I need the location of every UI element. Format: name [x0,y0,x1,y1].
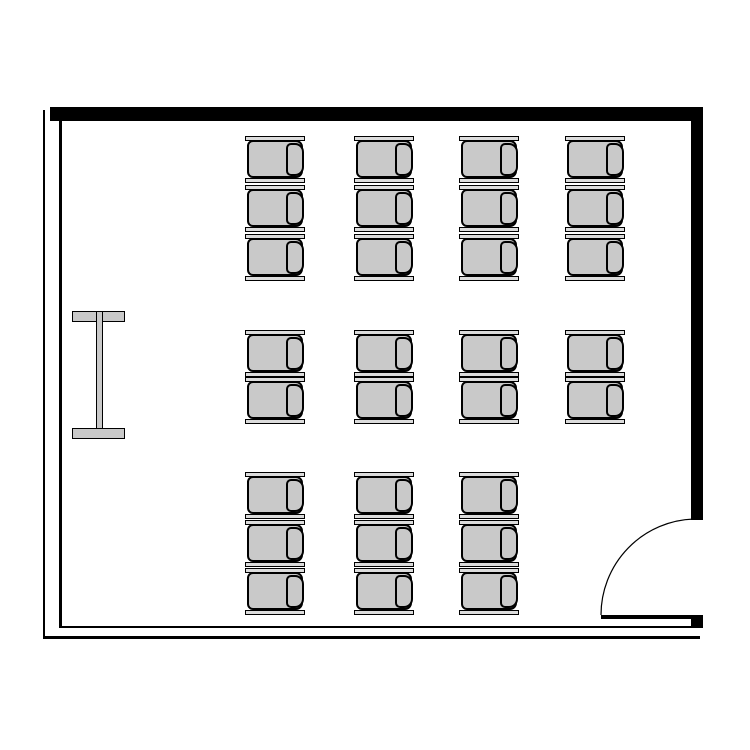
chair[interactable] [245,568,305,615]
chair-backrest [606,384,624,417]
chair[interactable] [459,234,519,281]
chair-armrest-bottom [245,419,305,424]
chair-backrest [395,527,413,560]
chair-backrest [500,575,518,608]
chair[interactable] [565,136,625,183]
chair-armrest-bottom [245,178,305,183]
chair-backrest [286,479,304,512]
chair-backrest [500,241,518,274]
chair[interactable] [354,472,414,519]
chair[interactable] [565,377,625,424]
chair[interactable] [565,234,625,281]
chair-backrest [286,143,304,176]
chair-backrest [500,337,518,370]
chair[interactable] [245,520,305,567]
chair[interactable] [245,472,305,519]
chair-armrest-bottom [354,562,414,567]
chair-armrest-bottom [354,610,414,615]
chair-backrest [500,192,518,225]
chair[interactable] [354,136,414,183]
chair[interactable] [354,185,414,232]
chair-armrest-bottom [245,514,305,519]
door-leaf [601,615,697,619]
chair-armrest-bottom [245,276,305,281]
wall-right [691,107,703,520]
chair-armrest-bottom [459,227,519,232]
chair-backrest [500,527,518,560]
chair-backrest [286,384,304,417]
chair-armrest-bottom [354,227,414,232]
chair-backrest [500,384,518,417]
chair-armrest-bottom [565,227,625,232]
chair-armrest-bottom [459,276,519,281]
chair-armrest-bottom [565,419,625,424]
chair[interactable] [354,520,414,567]
chair-backrest [500,479,518,512]
chair[interactable] [354,330,414,377]
chair-backrest [286,575,304,608]
lectern-web [96,311,103,439]
chair-backrest [286,337,304,370]
chair-armrest-bottom [354,419,414,424]
chair-backrest [395,575,413,608]
chair-armrest-bottom [459,514,519,519]
chair-armrest-bottom [354,276,414,281]
chair[interactable] [459,136,519,183]
chair-backrest [395,384,413,417]
chair-backrest [606,192,624,225]
chair-armrest-bottom [354,514,414,519]
chair-backrest [606,143,624,176]
chair[interactable] [459,185,519,232]
chair[interactable] [459,568,519,615]
chair[interactable] [245,377,305,424]
chair[interactable] [245,330,305,377]
chair[interactable] [245,234,305,281]
wall-left-inner [59,121,62,626]
chair[interactable] [245,136,305,183]
chair[interactable] [565,330,625,377]
door-hinge [691,615,703,628]
floor-plan-canvas [0,0,750,750]
chair-armrest-bottom [245,610,305,615]
chair[interactable] [565,185,625,232]
chair-backrest [286,527,304,560]
lectern-table[interactable] [72,311,125,439]
chair-backrest [286,241,304,274]
chair[interactable] [459,330,519,377]
chair-armrest-bottom [354,178,414,183]
wall-left-outer [43,110,45,639]
chair[interactable] [459,472,519,519]
chair-backrest [500,143,518,176]
wall-bottom-outer [43,636,700,639]
chair-backrest [395,192,413,225]
chair-armrest-bottom [245,562,305,567]
chair[interactable] [354,377,414,424]
chair-backrest [606,241,624,274]
wall-top [50,107,703,121]
chair[interactable] [245,185,305,232]
chair[interactable] [354,568,414,615]
chair-backrest [286,192,304,225]
chair-armrest-bottom [245,227,305,232]
chair-armrest-bottom [459,178,519,183]
chair-backrest [395,479,413,512]
chair-backrest [395,241,413,274]
chair-armrest-bottom [459,610,519,615]
chair[interactable] [354,234,414,281]
chair-backrest [395,337,413,370]
chair-armrest-bottom [459,562,519,567]
chair[interactable] [459,377,519,424]
lectern-bottom-flange [72,428,125,439]
chair-armrest-bottom [565,178,625,183]
chair-armrest-bottom [459,419,519,424]
chair-backrest [395,143,413,176]
door[interactable] [601,519,703,628]
chair-armrest-bottom [565,276,625,281]
chair-backrest [606,337,624,370]
chair[interactable] [459,520,519,567]
